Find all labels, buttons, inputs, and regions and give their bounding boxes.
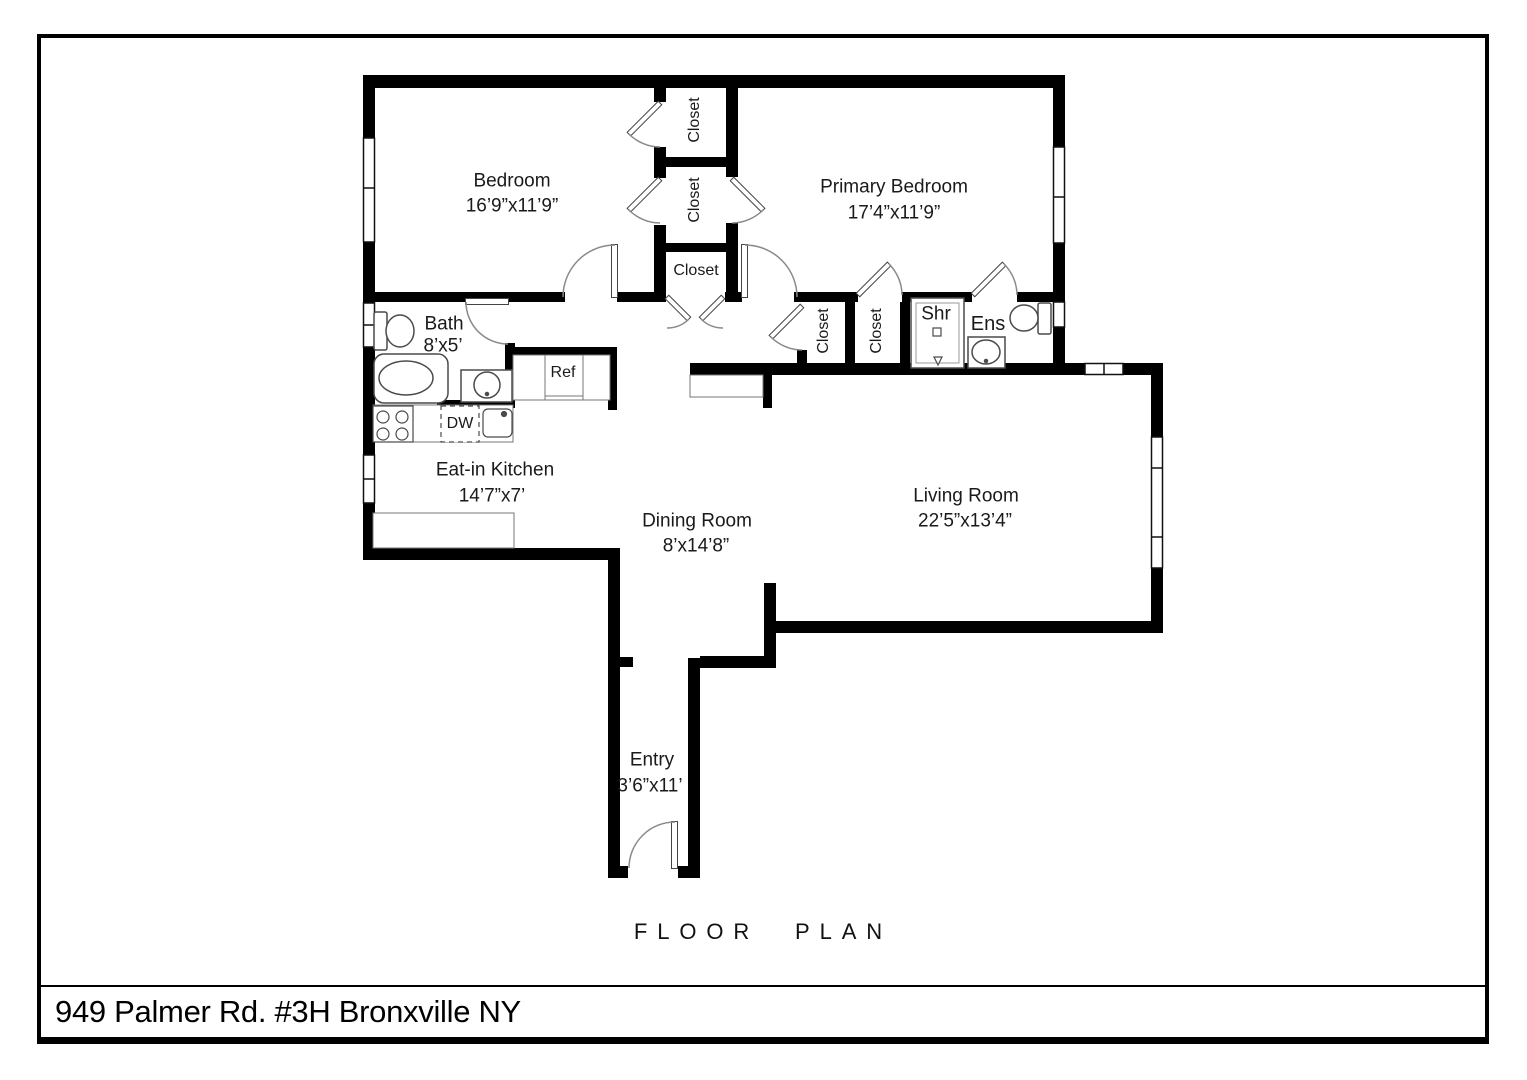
door-ensuite [971, 262, 1017, 297]
room-label-living-room: Living Room [913, 487, 1019, 506]
room-dims-kitchen: 14’7”x7’ [459, 487, 526, 506]
floor-plan-caption: FLOOR PLAN [634, 919, 892, 945]
door-bedroom [563, 245, 618, 298]
closet-label-top: Closet [687, 97, 703, 142]
kitchen-sink-icon [483, 409, 512, 437]
eat-in-table [373, 513, 514, 548]
address-bar-divider [41, 985, 1485, 987]
room-dims-entry: 3’6”x11’ [617, 777, 682, 796]
ensuite-sink-icon [968, 337, 1005, 368]
closet-label-walkin: Closet [869, 308, 885, 353]
room-label-entry: Entry [630, 751, 674, 770]
bath-tub-icon [374, 354, 448, 403]
window-living-top [1085, 363, 1123, 375]
closet-label-bottom: Closet [673, 263, 718, 279]
door-closet-top [627, 101, 662, 147]
room-label-primary-bedroom: Primary Bedroom [820, 178, 968, 197]
door-closet-middle-right [730, 177, 765, 223]
shower-label: Shr [921, 305, 951, 324]
room-label-dining-room: Dining Room [642, 512, 752, 531]
stove-icon [373, 406, 413, 442]
address-text: 949 Palmer Rd. #3H Bronxville NY [55, 994, 521, 1030]
room-label-kitchen: Eat-in Kitchen [436, 461, 554, 480]
door-closet-walkin [856, 262, 902, 297]
window-bedroom-left [363, 138, 375, 242]
dining-sideboard [690, 375, 763, 397]
door-primary-bedroom [742, 245, 798, 298]
refrigerator-label: Ref [551, 365, 576, 381]
ensuite-label: Ens [971, 314, 1005, 334]
floor-plan-drawing [0, 0, 1527, 1080]
closet-label-hall: Closet [816, 308, 832, 353]
room-label-bath: Bath [424, 315, 463, 334]
window-living-right [1151, 437, 1163, 568]
floor-plan-page: Bedroom 16’9”x11’9” Primary Bedroom 17’4… [0, 0, 1527, 1080]
room-dims-dining-room: 8’x14’8” [663, 537, 730, 556]
room-dims-living-room: 22’5”x13’4” [918, 512, 1012, 531]
door-closet-bottom-double [665, 295, 725, 328]
door-entry [629, 822, 678, 869]
door-bath [466, 299, 509, 345]
room-dims-bath: 8’x5’ [423, 337, 462, 356]
ensuite-toilet-icon [1010, 303, 1051, 334]
dishwasher-label: DW [447, 416, 474, 432]
room-dims-bedroom: 16’9”x11’9” [466, 197, 559, 216]
bath-toilet-icon [374, 312, 414, 350]
room-dims-primary-bedroom: 17’4”x11’9” [848, 204, 941, 223]
window-primary-right [1053, 147, 1065, 243]
bath-sink-icon [461, 370, 512, 402]
closet-label-middle: Closet [687, 177, 703, 222]
window-bath-left [363, 303, 375, 347]
door-closet-middle-left [627, 177, 662, 223]
door-closet-hall [769, 304, 804, 350]
window-kitchen-left [363, 455, 375, 503]
window-ensuite-right [1054, 302, 1065, 327]
room-label-bedroom: Bedroom [473, 172, 550, 191]
